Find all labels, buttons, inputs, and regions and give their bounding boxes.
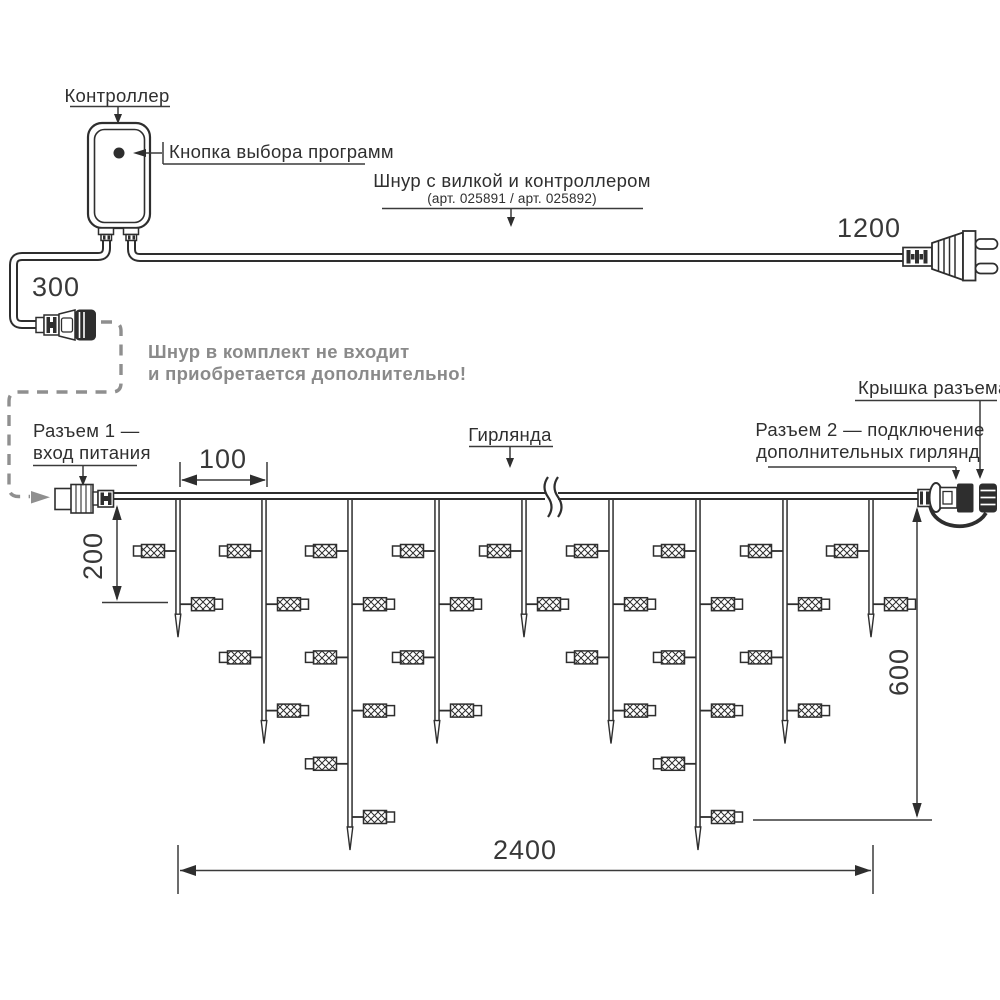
- dim-600-value: 600: [884, 648, 914, 696]
- dim-2400: 2400: [178, 835, 873, 894]
- lamp-icon: [613, 704, 655, 717]
- drop-1: [134, 494, 223, 637]
- lamp-icon: [613, 598, 655, 611]
- lamp-icon: [393, 545, 435, 558]
- connector1-label-line1: Разъем 1 —: [33, 420, 140, 441]
- lamp-icon: [654, 545, 696, 558]
- diagram-canvas: 100 200 600 2400 300 1200 Контроллер Кно…: [0, 0, 1000, 1000]
- drop-6: [567, 494, 656, 744]
- drop-9: [827, 494, 916, 637]
- lamp-icon: [352, 704, 394, 717]
- connector1-label-group: Разъем 1 — вход питания: [33, 420, 151, 486]
- lamp-icon: [526, 598, 568, 611]
- drop-2: [220, 494, 309, 744]
- lamp-icon: [741, 651, 783, 664]
- garland-schematic: 100 200 600 2400 300 1200 Контроллер Кно…: [0, 0, 1000, 1000]
- lamp-icon: [266, 598, 308, 611]
- lamp-icon: [393, 651, 435, 664]
- lamp-icon: [352, 811, 394, 824]
- drop-8: [741, 494, 830, 744]
- lamp-icon: [700, 704, 742, 717]
- lamp-icon: [306, 757, 348, 770]
- lamp-icon: [220, 651, 262, 664]
- connector2-label-group: Разъем 2 — подключение дополнительных ги…: [755, 419, 984, 480]
- cord-title-label: Шнур с вилкой и контроллером: [373, 170, 651, 191]
- connector2-label-line2: дополнительных гирлянд: [756, 441, 980, 462]
- lamp-icon: [567, 545, 609, 558]
- dim-200-value: 200: [78, 532, 108, 580]
- lamp-icon: [700, 811, 742, 824]
- lamp-icon: [439, 598, 481, 611]
- lamp-icon: [741, 545, 783, 558]
- cord-label-group: Шнур с вилкой и контроллером (арт. 02589…: [373, 170, 651, 227]
- controller-label-group: Контроллер: [64, 85, 170, 124]
- note-line1: Шнур в комплект не входит: [148, 341, 410, 362]
- lamp-icon: [439, 704, 481, 717]
- lamp-icon: [787, 704, 829, 717]
- lamp-icon: [567, 651, 609, 664]
- drop-4: [393, 494, 482, 744]
- note-group: Шнур в комплект не входит и приобретаетс…: [148, 341, 466, 384]
- dim-100-value: 100: [199, 444, 247, 474]
- connector2-label-line1: Разъем 2 — подключение: [755, 419, 984, 440]
- wire-break-icon: [545, 477, 562, 517]
- lamp-icon: [306, 545, 348, 558]
- program-button-label: Кнопка выбора программ: [169, 141, 394, 162]
- plug-prong-top: [976, 239, 998, 249]
- connector2: [918, 483, 997, 526]
- garland-drops: [134, 494, 916, 850]
- lamp-icon: [266, 704, 308, 717]
- dashed-cable-path: [9, 322, 121, 504]
- main-cord: [132, 240, 907, 258]
- drop-5: [480, 494, 569, 637]
- connector-cap: [979, 484, 997, 513]
- garland-label-group: Гирлянда: [468, 424, 553, 468]
- lamp-icon: [306, 651, 348, 664]
- lamp-icon: [220, 545, 262, 558]
- plug-prong-bottom: [976, 264, 998, 274]
- connector1: [55, 485, 114, 514]
- program-button-label-group: Кнопка выбора программ: [133, 141, 394, 164]
- lamp-icon: [654, 757, 696, 770]
- drop-7: [654, 494, 743, 850]
- dim-1200-value: 1200: [837, 213, 901, 243]
- cap-label: Крышка разъема: [858, 377, 1000, 398]
- lamp-icon: [873, 598, 915, 611]
- lamp-icon: [352, 598, 394, 611]
- drop-3: [306, 494, 395, 850]
- lamp-icon: [700, 598, 742, 611]
- lamp-icon: [134, 545, 176, 558]
- lamp-icon: [827, 545, 869, 558]
- garland-label: Гирлянда: [468, 424, 552, 445]
- controller-box: [88, 123, 150, 241]
- connector1-label-line2: вход питания: [33, 442, 151, 463]
- pigtail-connector: [36, 310, 96, 341]
- dim-300-value: 300: [32, 272, 80, 302]
- lamp-icon: [180, 598, 222, 611]
- gray-arrow-icon: [31, 491, 50, 504]
- power-plug: [903, 231, 998, 281]
- controller-stub-right: [124, 228, 139, 241]
- controller-stub-left: [99, 228, 114, 241]
- dim-100: 100: [180, 444, 267, 487]
- dim-2400-value: 2400: [493, 835, 557, 865]
- lamp-icon: [480, 545, 522, 558]
- lamp-icon: [787, 598, 829, 611]
- note-line2: и приобретается дополнительно!: [148, 363, 466, 384]
- controller-label: Контроллер: [64, 85, 169, 106]
- program-button-dot: [114, 148, 125, 159]
- lamp-icon: [654, 651, 696, 664]
- cord-articles-label: (арт. 025891 / арт. 025892): [427, 191, 597, 206]
